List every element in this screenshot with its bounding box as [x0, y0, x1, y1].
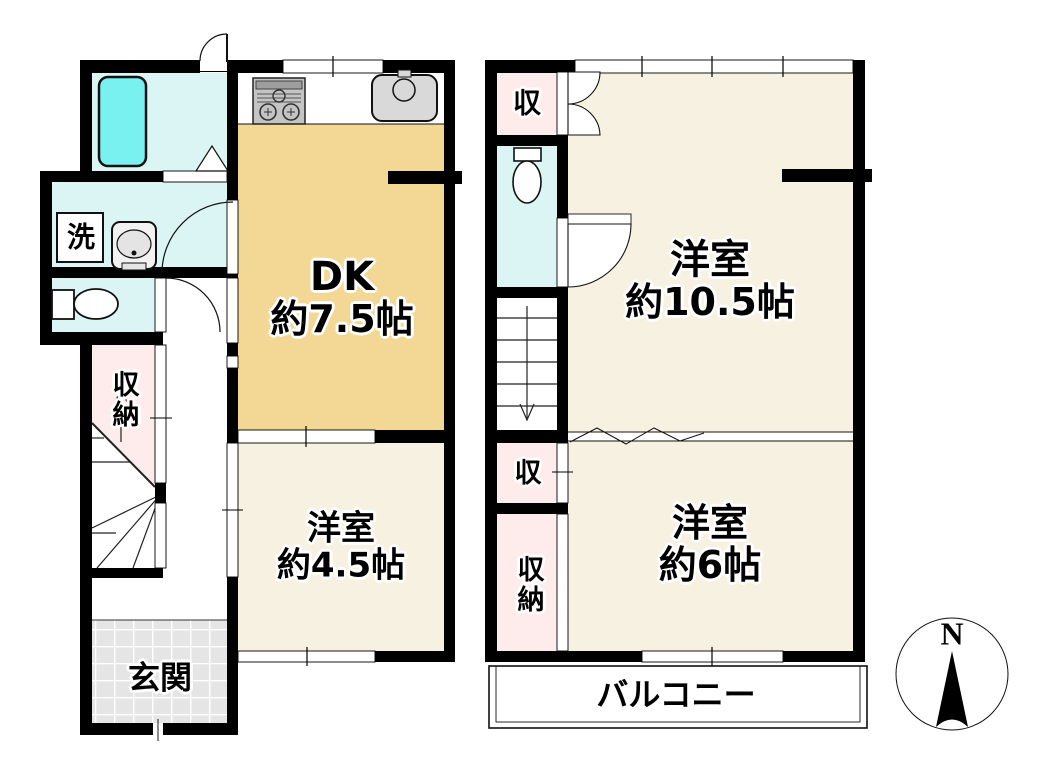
dk-area [238, 73, 444, 430]
laundry-label: 洗 [67, 223, 95, 254]
stairs-opening-band [155, 503, 166, 568]
storage1-door-band [155, 345, 166, 483]
western-room-6-size: 約6帖 [659, 545, 761, 587]
toilet1-door-arc-icon [166, 278, 220, 332]
room-10-5-window [575, 60, 853, 73]
toilet2-door-band [557, 218, 568, 287]
bathtub-icon [99, 77, 146, 166]
western-room-4-5-name: 洋室 [277, 511, 405, 548]
western-room-10-5-label: 洋室 約10.5帖 [625, 238, 795, 324]
corridor-wall-tick [227, 356, 238, 368]
western-room-6-name: 洋室 [659, 503, 761, 545]
western-room-10-5-name: 洋室 [625, 238, 795, 282]
laundry-door-leaf [227, 200, 238, 274]
kitchen-sink-icon [372, 70, 437, 121]
floor1-plan [40, 34, 462, 741]
wash-basin-icon [112, 222, 156, 270]
toilet1-door-leaf [155, 278, 166, 332]
dk-room-name: DK [270, 255, 413, 299]
compass-north-label: N [940, 616, 963, 651]
storage1-label: 収納 [110, 370, 137, 430]
entrance-label: 玄関 [128, 660, 192, 695]
closet-upper-door-band [557, 72, 568, 135]
toilet1-icon [52, 289, 118, 319]
closet-lower-door-band [557, 443, 568, 503]
stove-icon [253, 78, 305, 124]
bath-door-opening [163, 171, 227, 182]
backdoor-swing-icon [200, 34, 227, 62]
western-room-4-5-size: 約4.5帖 [277, 548, 405, 585]
balcony-label: バルコニー [596, 677, 755, 712]
dk-entry-opening [227, 278, 238, 343]
floor-plan-canvas: DK 約7.5帖 洋室 約4.5帖 玄関 収納 洗 洋室 約10.5帖 洋室 約… [0, 0, 1056, 773]
dk-room-size: 約7.5帖 [270, 299, 413, 341]
closet-lower-label: 収 [515, 459, 542, 489]
western-room-6-label: 洋室 約6帖 [659, 503, 761, 587]
closet-upper-label: 収 [513, 89, 541, 120]
stairs-down [497, 306, 557, 420]
stairs-down-arrow-icon [520, 306, 534, 420]
toilet2-door-leaf [568, 214, 631, 224]
toilet2-icon [513, 148, 541, 203]
western-room-10-5-size: 約10.5帖 [625, 282, 795, 324]
western-room-4-5-label: 洋室 約4.5帖 [277, 511, 405, 586]
dk-room-label: DK 約7.5帖 [270, 255, 413, 341]
wall-stub-1f [388, 171, 462, 184]
storage2-door-band [557, 514, 568, 651]
storage2-label: 収納 [515, 555, 542, 615]
floor2-plan [485, 56, 872, 728]
wall-stub-2f [782, 169, 872, 182]
